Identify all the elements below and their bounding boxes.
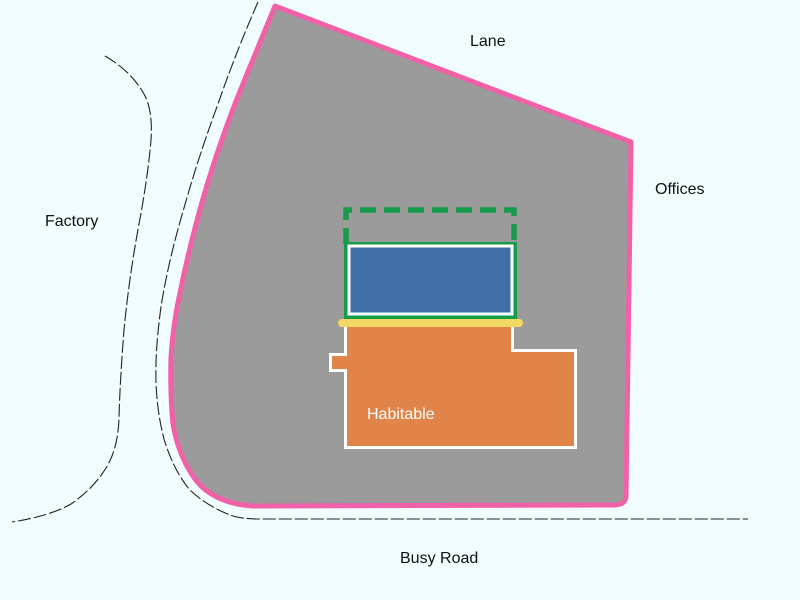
busy-road-label: Busy Road [400,550,478,568]
lane-label: Lane [470,33,506,51]
site-plan-drawing [0,0,800,600]
factory-label: Factory [45,213,98,231]
site-plan-diagram: Lane Offices Factory Busy Road Habitable [0,0,800,600]
habitable-label: Habitable [367,406,435,424]
existing-building [349,246,512,314]
offices-label: Offices [655,181,705,199]
